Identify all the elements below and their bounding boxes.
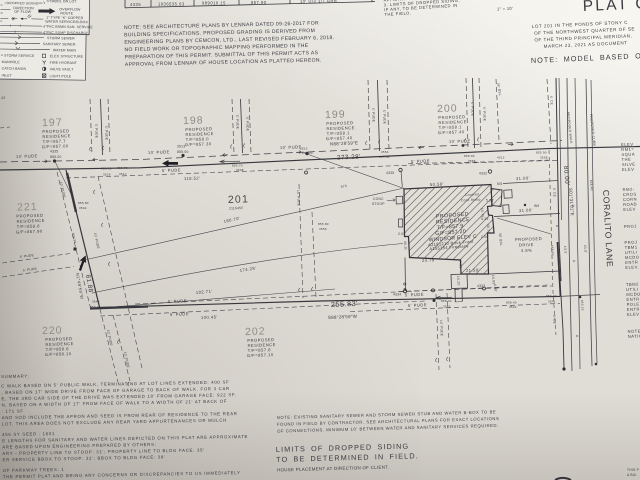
svg-text:855.70: 855.70 <box>117 166 128 170</box>
svg-text:211645F: 211645F <box>229 206 244 211</box>
svg-text:21.0': 21.0' <box>583 245 588 254</box>
svg-text:THIS P: THIS P <box>627 468 640 472</box>
svg-text:ELEC STRUCTURE: ELEC STRUCTURE <box>50 54 84 58</box>
svg-text:50.58': 50.58' <box>430 181 444 187</box>
svg-text:855.70: 855.70 <box>90 305 101 309</box>
svg-text:CATCH BASIN: CATCH BASIN <box>2 67 27 71</box>
svg-text:273.28': 273.28' <box>337 153 361 161</box>
svg-text:10' PUDE: 10' PUDE <box>16 153 38 159</box>
svg-text:858.90: 858.90 <box>464 154 475 158</box>
svg-text:INLET: INLET <box>1 74 12 78</box>
svg-text:5' PUDE: 5' PUDE <box>104 126 109 141</box>
svg-text:4"PVC BSMN SAN. SERVICE: 4"PVC BSMN SAN. SERVICE <box>43 25 93 30</box>
svg-text:STOOP: STOOP <box>372 202 385 206</box>
svg-text:ELEV: ELEV <box>627 311 640 316</box>
svg-text:3.8%: 3.8% <box>521 248 533 253</box>
svg-text:5' CE: 5' CE <box>552 315 557 325</box>
svg-text:5' PUDE: 5' PUDE <box>94 124 99 139</box>
svg-text:221: 221 <box>17 201 38 214</box>
svg-text:G/F=857.90: G/F=857.90 <box>16 229 43 235</box>
svg-text:13.5': 13.5' <box>563 246 568 255</box>
svg-text:857.90: 857.90 <box>251 0 267 5</box>
svg-text:3558: 3558 <box>540 156 548 160</box>
svg-text:PROPOSED: PROPOSED <box>515 236 542 242</box>
svg-text:G/F=857.30: G/F=857.30 <box>185 141 212 147</box>
svg-text:10' PUDE: 10' PUDE <box>148 149 170 155</box>
svg-text:PLAT O: PLAT O <box>582 0 640 15</box>
svg-text:NATIO: NATIO <box>628 333 640 339</box>
svg-text:21.58': 21.58' <box>466 267 480 273</box>
svg-text:WATER SERVICE/B-BOX: WATER SERVICE/B-BOX <box>45 20 88 25</box>
svg-text:5.38': 5.38' <box>486 199 494 203</box>
svg-text:OF FLOW: OF FLOW <box>14 10 31 14</box>
svg-text:197: 197 <box>42 116 63 129</box>
svg-text:3513: 3513 <box>177 145 185 149</box>
svg-text:5' PUDE: 5' PUDE <box>235 115 240 130</box>
svg-text:5' PUDE: 5' PUDE <box>371 108 376 123</box>
svg-text:201: 201 <box>228 193 250 206</box>
svg-text:4335: 4335 <box>50 150 58 154</box>
svg-text:ELEV: ELEV <box>622 167 635 172</box>
svg-text:SUMMARY:: SUMMARY: <box>1 373 30 378</box>
svg-text:5' PUDE: 5' PUDE <box>168 298 187 304</box>
svg-text:456 SY SEED : 1601: 456 SY SEED : 1601 <box>2 431 55 437</box>
svg-text:3562: 3562 <box>443 305 451 309</box>
svg-text:199: 199 <box>325 108 346 121</box>
svg-text:255.83': 255.83' <box>331 299 359 309</box>
svg-text:4334: 4334 <box>393 293 401 297</box>
svg-text:200: 200 <box>437 102 458 115</box>
svg-text:5' PUDE: 5' PUDE <box>408 302 427 308</box>
svg-text:855.00: 855.00 <box>50 155 62 159</box>
svg-text:WATER MAIN: WATER MAIN <box>53 48 77 52</box>
svg-text:5' PUDE: 5' PUDE <box>405 292 424 298</box>
svg-text:16.75: 16.75 <box>480 208 485 218</box>
svg-text:5' CE: 5' CE <box>549 96 554 106</box>
svg-text:4212: 4212 <box>497 156 505 160</box>
svg-text:855.80: 855.80 <box>78 201 89 205</box>
svg-text:43: 43 <box>1 96 5 100</box>
svg-text:MANHOLE: MANHOLE <box>2 60 21 64</box>
svg-text:FIRE HYDRANT: FIRE HYDRANT <box>50 61 78 65</box>
svg-text:5.33': 5.33' <box>481 217 489 221</box>
svg-text:=DROPPED SIDING: =DROPPED SIDING <box>4 1 38 5</box>
svg-text:3541: 3541 <box>548 300 556 304</box>
svg-text:10' PUDE: 10' PUDE <box>449 138 471 144</box>
svg-text:G/F=857.10: G/F=857.10 <box>247 352 274 358</box>
svg-text:46.11: 46.11 <box>403 241 408 251</box>
svg-text:: 171 SF: : 171 SF <box>2 408 24 413</box>
svg-text:4335: 4335 <box>130 2 141 7</box>
svg-text:G/F=858.10: G/F=858.10 <box>45 351 72 357</box>
svg-text:SYMBOL ON LOT: SYMBOL ON LOT <box>47 0 78 4</box>
svg-text:855.23: 855.23 <box>580 300 585 311</box>
svg-text:STORM SEWER: STORM SEWER <box>47 36 75 40</box>
svg-text:5' PUDE: 5' PUDE <box>245 117 250 132</box>
svg-text:PROJ: PROJ <box>624 224 637 229</box>
svg-text:1" = 10': 1" = 10' <box>497 6 513 12</box>
svg-text:2.00': 2.00' <box>398 232 406 236</box>
svg-text:3542: 3542 <box>79 206 87 210</box>
svg-text:868.40: 868.40 <box>441 299 452 303</box>
svg-text:VALVE VAULT: VALVE VAULT <box>50 67 75 71</box>
svg-text:10' PUDE: 10' PUDE <box>280 144 302 150</box>
svg-text:4335: 4335 <box>386 171 394 175</box>
svg-text:5' PUDE: 5' PUDE <box>482 107 487 122</box>
svg-text:118.52': 118.52' <box>184 175 201 181</box>
svg-text:5' PUDE: 5' PUDE <box>411 158 430 164</box>
svg-text:ELEV: ELEV <box>623 207 636 212</box>
svg-text:198: 198 <box>183 114 204 127</box>
svg-text:3542: 3542 <box>509 305 517 309</box>
svg-text:858.40: 858.40 <box>589 180 594 191</box>
svg-text:5' PUDE: 5' PUDE <box>170 311 189 317</box>
svg-text:5/5: 5/5 <box>497 182 502 186</box>
svg-text:855.90: 855.90 <box>536 151 547 155</box>
svg-text:100.45': 100.45' <box>201 314 218 320</box>
svg-text:855.80: 855.80 <box>546 294 557 298</box>
svg-text:= STORM SERVICE: = STORM SERVICE <box>1 54 35 58</box>
svg-text:80.00': 80.00' <box>562 166 570 186</box>
svg-text:855.30: 855.30 <box>302 151 313 155</box>
svg-text:3559: 3559 <box>319 227 327 231</box>
svg-text:Covered: Covered <box>465 192 479 197</box>
svg-text:CONC: CONC <box>373 197 384 201</box>
svg-text:4332: 4332 <box>479 172 487 176</box>
svg-text:5' PUDE: 5' PUDE <box>470 102 475 117</box>
svg-text:202: 202 <box>245 325 266 338</box>
svg-text:W5: W5 <box>534 204 539 208</box>
svg-text:LIGHT POLE: LIGHT POLE <box>49 74 71 78</box>
svg-text:31.00': 31.00' <box>519 207 533 213</box>
svg-text:3518: 3518 <box>103 173 111 177</box>
svg-text:4"PVC SUMP DISCHARGE: 4"PVC SUMP DISCHARGE <box>43 31 89 36</box>
svg-text:2.00': 2.00' <box>481 235 489 239</box>
svg-text:858.40: 858.40 <box>506 301 517 305</box>
svg-text:24.79': 24.79' <box>422 257 436 263</box>
svg-text:SANITARY SEWER: SANITARY SEWER <box>43 42 76 46</box>
svg-text:5' PUDE: 5' PUDE <box>382 110 387 125</box>
svg-text:G/F=857.00: G/F=857.00 <box>42 143 69 149</box>
svg-text:855.80: 855.80 <box>318 222 329 226</box>
svg-text:5' PUDE: 5' PUDE <box>162 167 181 173</box>
svg-text:1936535.63: 1936535.63 <box>158 1 185 6</box>
svg-text:989010.15: 989010.15 <box>202 1 226 6</box>
svg-text:A BUI: A BUI <box>627 473 637 477</box>
svg-text:3513: 3513 <box>300 147 308 151</box>
svg-text:3643: 3643 <box>92 300 100 304</box>
svg-text:31.00': 31.00' <box>516 175 530 181</box>
svg-text:3517: 3517 <box>119 172 127 176</box>
svg-text:3554: 3554 <box>381 150 389 154</box>
svg-text:4333: 4333 <box>477 284 485 288</box>
svg-text:855.70: 855.70 <box>232 164 243 168</box>
svg-text:G/F=857.40: G/F=857.40 <box>438 129 465 135</box>
svg-text:855.50: 855.50 <box>101 167 112 171</box>
svg-text:5' CE: 5' CE <box>552 188 557 198</box>
svg-text:220: 220 <box>42 324 63 337</box>
svg-text:7.96: 7.96 <box>458 261 463 269</box>
svg-text:ELEV.: ELEV. <box>625 264 639 269</box>
svg-text:855.00: 855.00 <box>177 150 189 154</box>
